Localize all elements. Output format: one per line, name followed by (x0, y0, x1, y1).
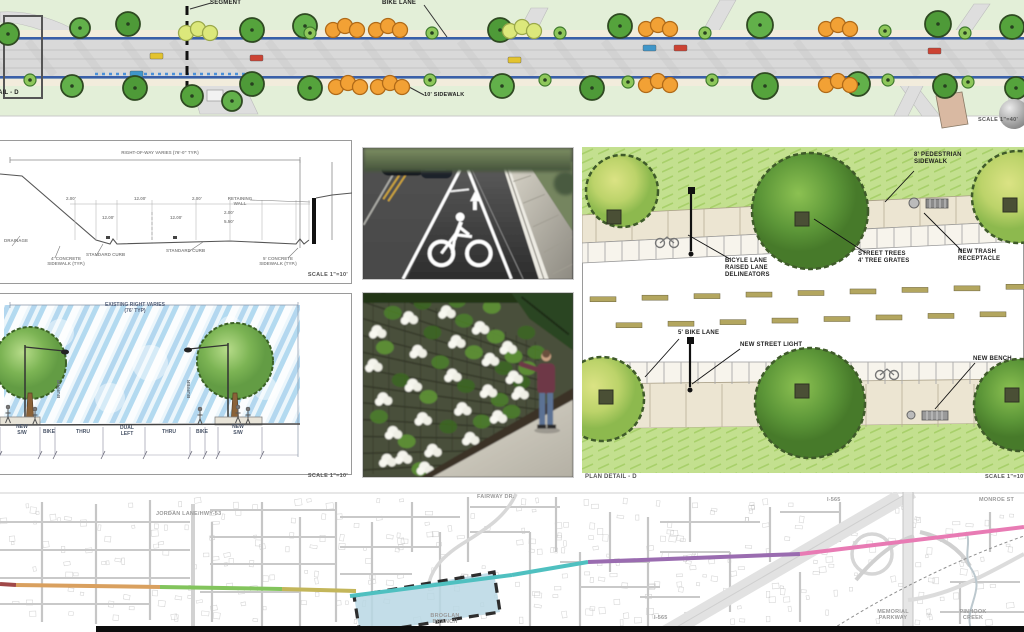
presentation-board: SEGMENT BIKE LANE 10' SIDEWALK DETAIL - … (0, 0, 1024, 632)
lane-label-sw-right: NEW S/W (220, 425, 256, 437)
map-label-i565-top: I-565 (827, 497, 841, 503)
street-trees-callout: STREET TREES 4' TREE GRATES (858, 251, 909, 265)
lane-label-bike-right: BIKE (190, 430, 214, 436)
bench-callout: NEW BENCH (973, 356, 1012, 363)
green-wall-photo (362, 292, 574, 478)
curb-right-callout: STANDARD CURB (166, 248, 205, 253)
street-section-rendering-graphic (0, 293, 352, 475)
dim-text: 5.50' (224, 219, 234, 224)
lane-label-dual-left: DUAL LEFT (106, 426, 148, 438)
corridor-plan-scale: SCALE 1"=40' (978, 117, 1024, 123)
curb-left-callout: STANDARD CURB (86, 252, 125, 257)
map-label-memorial: MEMORIAL PARKWAY (862, 609, 924, 622)
ped-sidewalk-callout: 8' PEDESTRIAN SIDEWALK (914, 152, 962, 166)
section-title: EXISTING RIGHT VARIES (76' TYP) (55, 303, 215, 315)
sidewalk-left-callout: 4' CONCRETE SIDEWALK (TYP.) (38, 256, 94, 267)
map-label-fairway: FAIRWAY DR. (477, 494, 515, 500)
dim-text: 2.00' (192, 196, 202, 201)
bike-delineators-callout: BICYLE LANE RAISED LANE DELINEATORS (725, 258, 770, 279)
retaining-wall-callout: RETAINING WALL (222, 196, 258, 207)
trash-callout: NEW TRASH RECEPTACLE (958, 249, 1000, 263)
street-light-callout: NEW STREET LIGHT (740, 342, 802, 349)
buffer-label-right: BUFFER (186, 380, 191, 398)
lane-label-bike-left: BIKE (38, 430, 60, 436)
drainage-callout: DRAINAGE (4, 238, 28, 243)
dim-text: 2.00' (224, 210, 234, 215)
section-rendering-scale: SCALE 1"=10' (296, 473, 348, 479)
lane-label-thru-left: THRU (62, 430, 104, 436)
section-drawing-scale: SCALE 1"=10' (296, 272, 348, 278)
dim-text: 12.00' (102, 215, 114, 220)
detail-ref-label: DETAIL - D (0, 90, 19, 97)
sidewalk-right-callout: 5' CONCRETE SIDEWALK (TYP.) (250, 256, 306, 267)
map-label-broglan: BROGLAN BRANCH (420, 613, 470, 626)
plan-detail-scale: SCALE 1"=10' (985, 474, 1024, 480)
segment-label: SEGMENT (210, 0, 241, 7)
bike-lane-photo (362, 147, 574, 280)
corridor-plan-graphic (0, 0, 1024, 134)
plan-detail-title: PLAN DETAIL - D (585, 474, 637, 481)
map-label-pinhook: PINHOOK CREEK (946, 609, 1000, 622)
sidewalk-label: 10' SIDEWALK (424, 92, 464, 98)
dim-text: 12.00' (170, 215, 182, 220)
north-sphere-icon (999, 99, 1024, 129)
map-label-monroe: MONROE ST (979, 497, 1024, 503)
map-label-jordan: JORDAN LANE/HWY-53 (156, 511, 221, 517)
buffer-label-left: BUFFER (56, 380, 61, 398)
map-label-i565-bottom: I-565 (654, 615, 668, 621)
row-dim-label: RIGHT-OF-WAY VARIES (76'-0" TYP.) (70, 150, 250, 155)
lane-label-thru-right: THRU (148, 430, 190, 436)
dim-text: 2.00' (66, 196, 76, 201)
plan-detail-graphic (582, 147, 1024, 473)
dim-text: 12.00' (134, 196, 146, 201)
bike-lane-label: BIKE LANE (382, 0, 416, 7)
bike-lane-callout: 5' BIKE LANE (678, 330, 719, 337)
board-bottom-bar (96, 626, 1024, 632)
lane-label-sw-left: NEW S/W (6, 425, 38, 437)
